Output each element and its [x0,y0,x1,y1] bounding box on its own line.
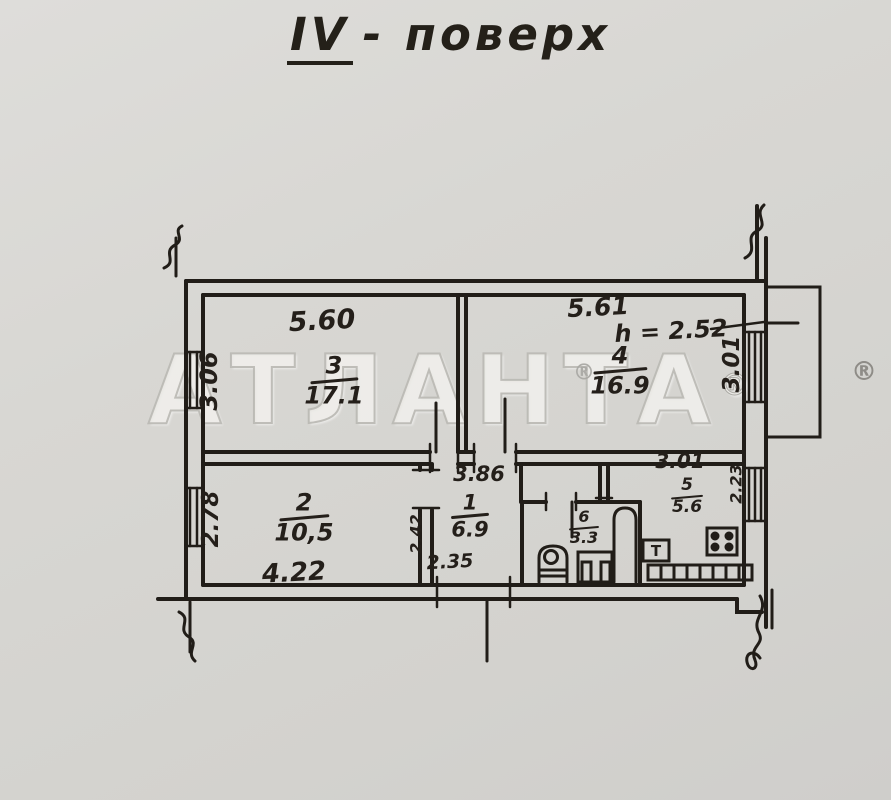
toilet-icon [545,551,558,564]
stove-burner-icon [712,533,718,539]
stove-burner-icon [712,544,718,550]
room5-number: 5 [681,477,693,495]
room6-area: 3.3 [570,530,598,547]
dim-room4-height: 3.01 [719,336,745,393]
room6-number: 6 [578,509,589,526]
balcony [766,287,820,437]
table-letter: T [651,542,661,560]
dim-room2-width: 4.22 [261,556,327,589]
stove-burner-icon [726,544,732,550]
room3-label: 3 17.1 [304,353,363,408]
room2-label: 2 10,5 [274,490,333,545]
room4-label: 4 16.9 [590,343,649,398]
dim-room3-width: 5.60 [288,304,356,338]
dim-hall-bottom: 2.35 [426,550,474,574]
floor-word: - поверх [363,8,612,61]
dim-room2-height: 2.78 [198,491,224,548]
floor-plan-drawing [0,0,891,800]
dim-room4-width: 5.61 [566,291,629,323]
counter-icon [661,565,739,580]
room4-number: 4 [612,343,629,368]
room4-area: 16.9 [590,374,649,399]
room5-label: 5 5.6 [671,477,703,517]
sink-icon [601,562,610,582]
room3-area: 17.1 [304,384,363,409]
bathtub-icon [614,508,636,582]
room1-area: 6.9 [451,519,488,541]
room1-label: 1 6.9 [451,491,489,540]
dim-hall-width: 3.86 [453,462,505,486]
room6-label: 6 3.3 [569,509,599,547]
room3-number: 3 [326,353,343,378]
dim-kitchen-width: 3.01 [655,449,704,473]
stove-icon [707,528,737,555]
dim-hall-height: 2.42 [407,514,426,553]
floor-plan-scan: АТЛАНТА® ® ® [0,0,891,800]
room5-area: 5.6 [672,499,702,517]
dim-room3-height: 3.06 [195,351,223,410]
sink-icon [582,562,591,582]
room2-number: 2 [296,490,313,515]
floor-number: IV [287,8,353,65]
page-title: IV- поверх [287,8,611,61]
stove-burner-icon [726,533,732,539]
room2-area: 10,5 [274,521,333,546]
dim-kitchen-height: 2.23 [727,464,746,503]
room1-number: 1 [463,491,478,513]
